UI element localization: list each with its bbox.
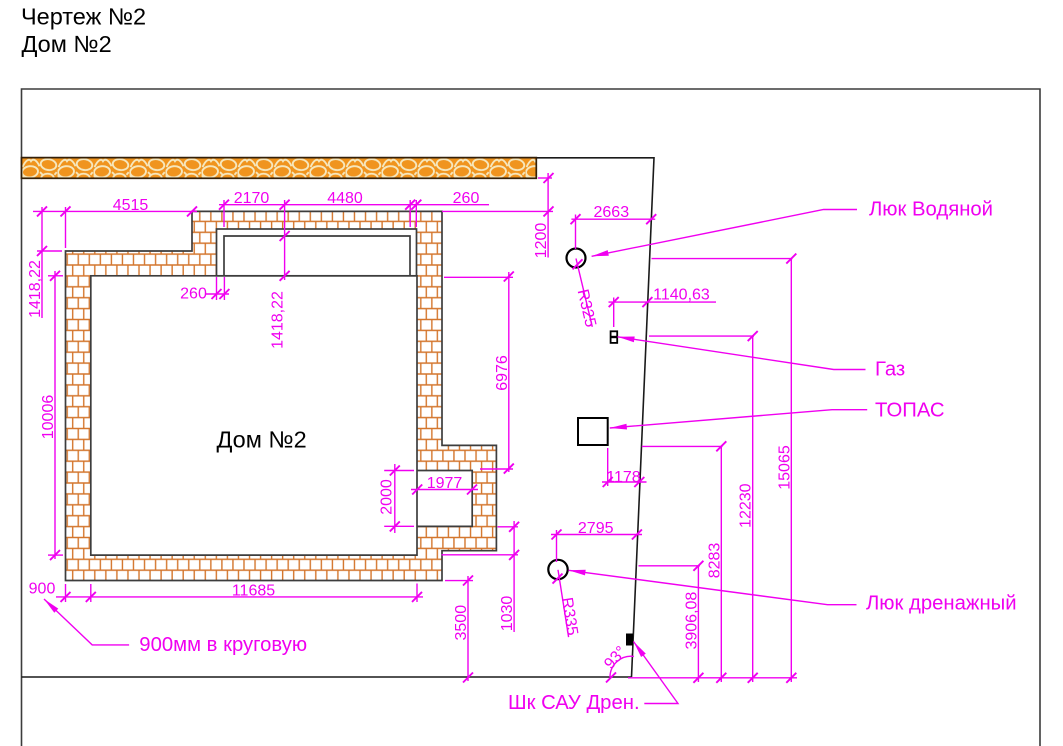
svg-text:3500: 3500 <box>453 605 470 641</box>
svg-text:1200: 1200 <box>533 223 550 259</box>
svg-text:ТОПАС: ТОПАС <box>875 400 945 422</box>
svg-text:Дом №2: Дом №2 <box>22 31 112 57</box>
svg-text:10006: 10006 <box>40 395 57 440</box>
svg-text:900: 900 <box>29 581 56 598</box>
svg-text:12230: 12230 <box>738 483 755 528</box>
svg-text:1178: 1178 <box>606 469 641 486</box>
svg-text:1140,63: 1140,63 <box>653 287 710 304</box>
svg-text:Газ: Газ <box>875 359 905 381</box>
svg-text:260: 260 <box>453 190 480 207</box>
svg-text:Шк САУ Дрен.: Шк САУ Дрен. <box>508 692 640 714</box>
svg-text:Люк дренажный: Люк дренажный <box>866 593 1017 615</box>
svg-text:Люк Водяной: Люк Водяной <box>869 199 993 221</box>
svg-text:6976: 6976 <box>494 355 511 391</box>
svg-text:1030: 1030 <box>499 596 516 632</box>
svg-text:1418,22: 1418,22 <box>27 260 44 318</box>
svg-text:4480: 4480 <box>327 190 363 207</box>
svg-text:260: 260 <box>180 286 207 303</box>
svg-text:2000: 2000 <box>379 479 396 515</box>
svg-text:4515: 4515 <box>113 197 149 214</box>
svg-text:Чертеж №2: Чертеж №2 <box>21 4 146 30</box>
svg-text:1418,22: 1418,22 <box>270 291 287 349</box>
svg-text:2170: 2170 <box>234 190 270 207</box>
svg-text:2795: 2795 <box>578 520 614 537</box>
svg-text:8283: 8283 <box>706 543 723 579</box>
svg-text:3906,08: 3906,08 <box>683 592 700 650</box>
svg-text:900мм в круговую: 900мм в круговую <box>139 634 307 656</box>
svg-text:2663: 2663 <box>594 204 630 221</box>
svg-text:11685: 11685 <box>232 583 275 600</box>
svg-text:15065: 15065 <box>776 445 793 490</box>
svg-text:Дом №2: Дом №2 <box>217 426 307 452</box>
svg-text:1977: 1977 <box>427 475 463 492</box>
